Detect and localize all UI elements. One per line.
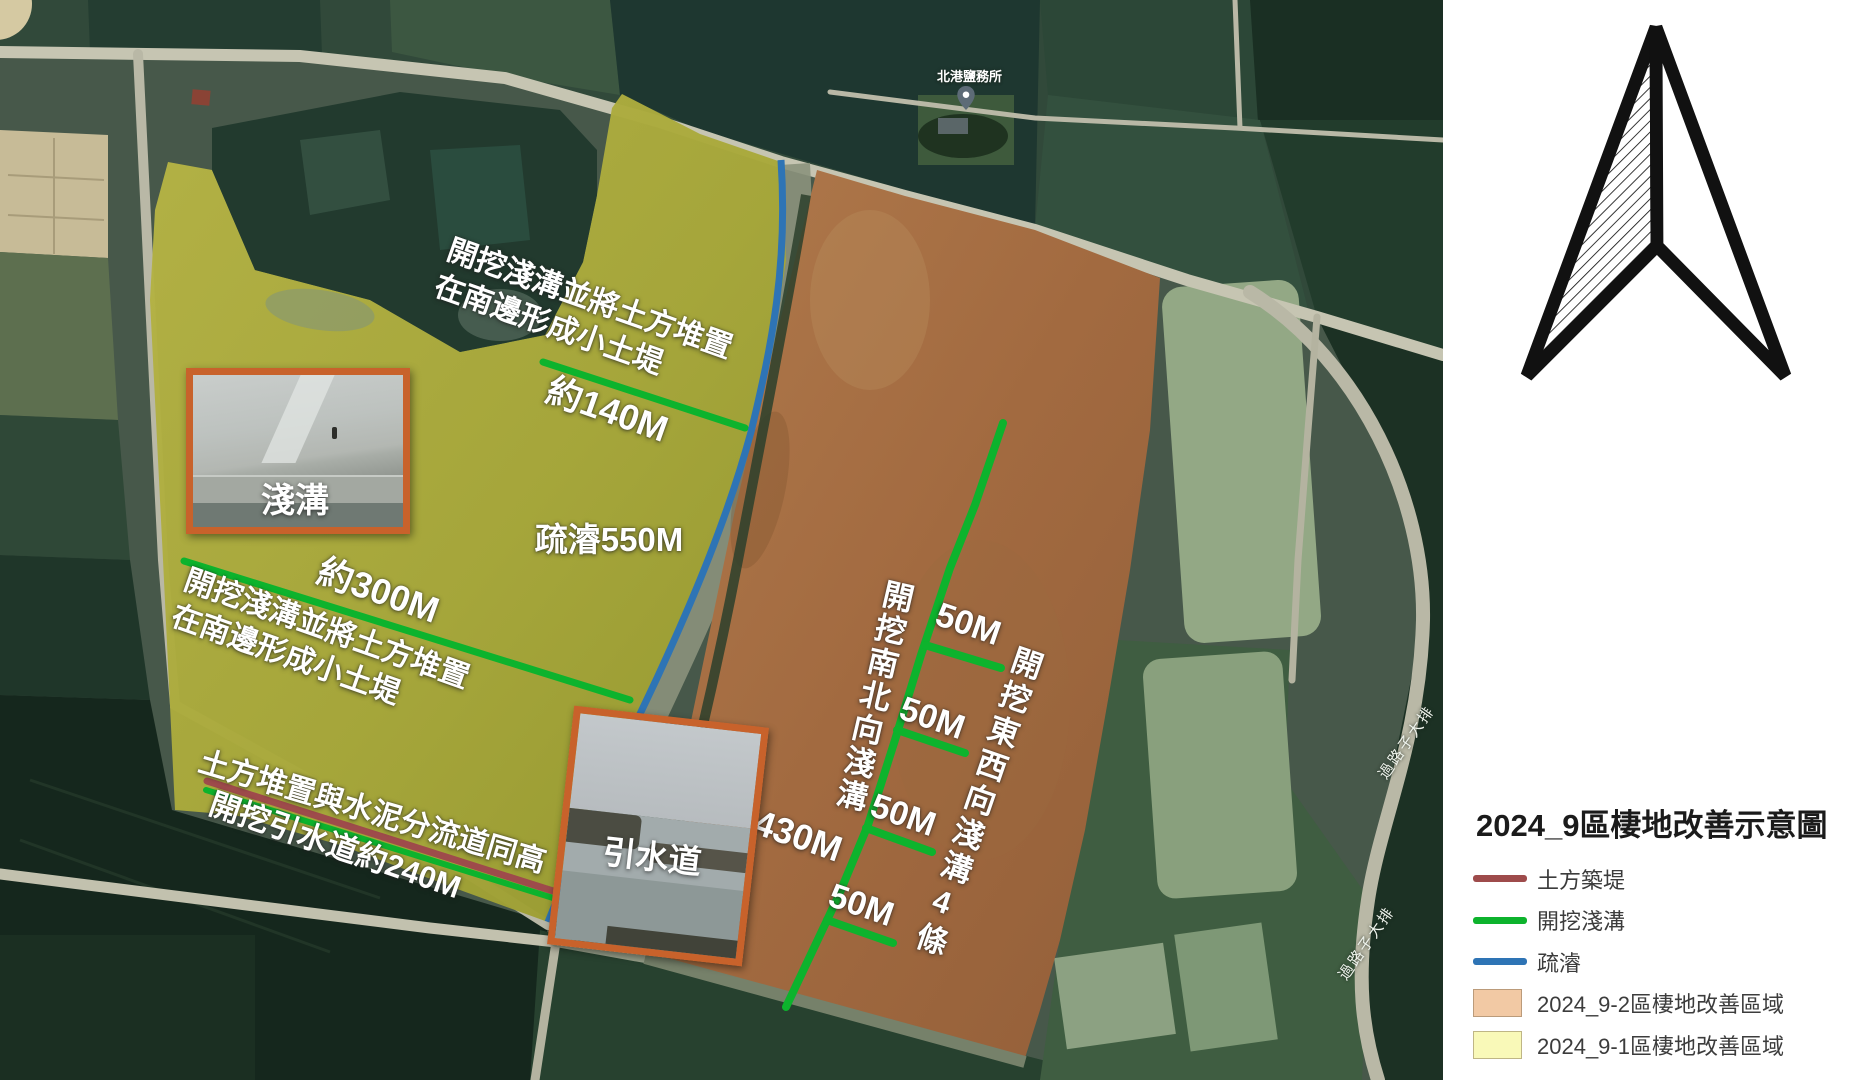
legend-area-swatch-9-2 — [1473, 989, 1522, 1017]
legend-label: 土方築堤 — [1537, 863, 1625, 895]
legend-item-dredge: 疏濬 — [1473, 941, 1784, 983]
map-pin-icon — [957, 86, 975, 110]
photo-label-shallow-ditch: 淺溝 — [261, 473, 329, 522]
legend-line-swatch-dredge — [1473, 958, 1527, 965]
photo-detail — [262, 375, 335, 463]
measurement-dredge-550m: 疏濬550M — [535, 519, 684, 561]
photo-shallow-ditch: 淺溝 — [186, 368, 410, 534]
photo-detail — [332, 427, 337, 439]
satellite-map: 北港鹽務所 過路子大排 過路子大排 開挖淺溝並將土方堆置 在南邊形成小土堤 約1… — [0, 0, 1443, 1080]
legend-area-swatch-9-1 — [1473, 1031, 1522, 1059]
legend-label: 開挖淺溝 — [1537, 904, 1625, 936]
legend-panel: 2024_9區棲地改善示意圖 土方築堤 開挖淺溝 疏濬 2024_9-2區棲地改… — [1443, 0, 1863, 1080]
north-arrow-icon — [1517, 18, 1793, 390]
poi-label: 北港鹽務所 — [937, 66, 1002, 85]
legend-line-swatch-ditch — [1473, 917, 1527, 924]
map-title: 2024_9區棲地改善示意圖 — [1476, 800, 1827, 845]
legend-label: 2024_9-2區棲地改善區域 — [1537, 987, 1784, 1019]
legend-item-berm: 土方築堤 — [1473, 858, 1784, 900]
legend-label: 疏濬 — [1537, 946, 1581, 978]
legend-item-ditch: 開挖淺溝 — [1473, 900, 1784, 942]
legend-line-swatch-berm — [1473, 875, 1527, 882]
photo-diversion-channel: 引水道 — [547, 706, 769, 967]
legend-label: 2024_9-1區棲地改善區域 — [1537, 1029, 1784, 1061]
legend: 土方築堤 開挖淺溝 疏濬 2024_9-2區棲地改善區域 2024_9-1區棲地… — [1473, 858, 1784, 1066]
habitat-improvement-map-page: 北港鹽務所 過路子大排 過路子大排 開挖淺溝並將土方堆置 在南邊形成小土堤 約1… — [0, 0, 1863, 1080]
legend-item-zone-9-1: 2024_9-1區棲地改善區域 — [1473, 1024, 1784, 1066]
legend-item-zone-9-2: 2024_9-2區棲地改善區域 — [1473, 983, 1784, 1025]
